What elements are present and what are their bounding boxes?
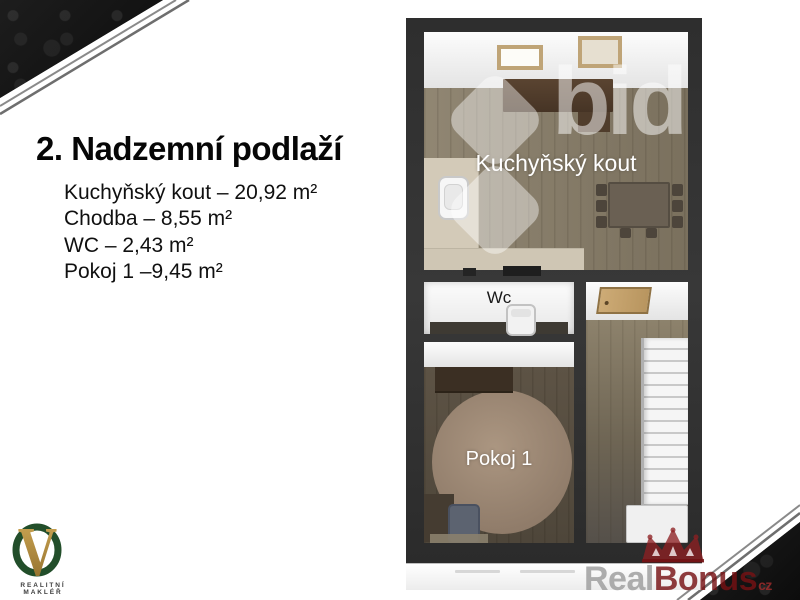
dining-chair	[672, 184, 683, 196]
wc-label: Wc	[424, 288, 574, 308]
hall-door	[596, 287, 652, 314]
sink-basin	[444, 184, 463, 210]
pokoj-wall	[424, 342, 574, 367]
room-area-item: Chodba – 8,55 m²	[64, 206, 317, 232]
toilet-lid	[511, 309, 531, 317]
door-threshold	[463, 268, 476, 276]
floorplan: Kuchyňský kout Wc Pokoj 1	[406, 18, 702, 590]
kitchen-label: Kuchyňský kout	[424, 150, 688, 177]
pokoj1-label: Pokoj 1	[424, 448, 574, 471]
door-threshold	[503, 266, 541, 276]
kitchen-sideboard	[578, 112, 610, 132]
logo-caption: REALITNÍ MAKLÉŘ	[0, 582, 86, 596]
dining-chair	[596, 184, 607, 196]
dining-chair	[596, 216, 607, 228]
pokoj-desk	[435, 367, 513, 393]
room-area-item: Kuchyňský kout – 20,92 m²	[64, 180, 317, 206]
dining-chair	[620, 228, 631, 238]
room-area-item: Pokoj 1 –9,45 m²	[64, 259, 317, 285]
room-wc: Wc	[424, 282, 574, 334]
agency-logo-icon: V	[0, 518, 86, 580]
room-kitchen: Kuchyňský kout	[424, 32, 688, 270]
pokoj-side-table	[430, 534, 488, 543]
room-hallway	[586, 282, 688, 543]
logo-letter-v: V	[18, 518, 57, 580]
wc-toilet	[506, 304, 536, 336]
agency-logo: V REALITNÍ MAKLÉŘ	[0, 518, 86, 596]
kitchen-sink	[438, 176, 469, 220]
page-title: 2. Nadzemní podlaží	[36, 130, 342, 168]
room-area-item: WC – 2,43 m²	[64, 233, 317, 259]
dining-chair	[596, 200, 607, 212]
room-area-list: Kuchyňský kout – 20,92 m² Chodba – 8,55 …	[64, 180, 317, 286]
base-groove	[455, 570, 500, 573]
hall-closet	[626, 505, 688, 543]
dining-chair	[672, 216, 683, 228]
kitchen-sideboard	[503, 79, 613, 112]
door-handle-icon	[604, 301, 609, 305]
wall-shelf	[497, 45, 543, 70]
slide-background: { "slide": { "title": "2. Nadzemní podla…	[0, 0, 800, 600]
corner-ornament-bottom-right	[700, 522, 800, 600]
wc-floor	[430, 322, 568, 334]
corner-ornament-top-left	[0, 0, 163, 98]
staircase	[641, 338, 688, 505]
dining-table	[608, 182, 670, 228]
dining-chair	[646, 228, 657, 238]
plan-base	[406, 563, 702, 590]
room-pokoj1: Pokoj 1	[424, 342, 574, 543]
base-groove	[520, 570, 575, 573]
wall-picture	[578, 36, 622, 68]
dining-chair	[672, 200, 683, 212]
